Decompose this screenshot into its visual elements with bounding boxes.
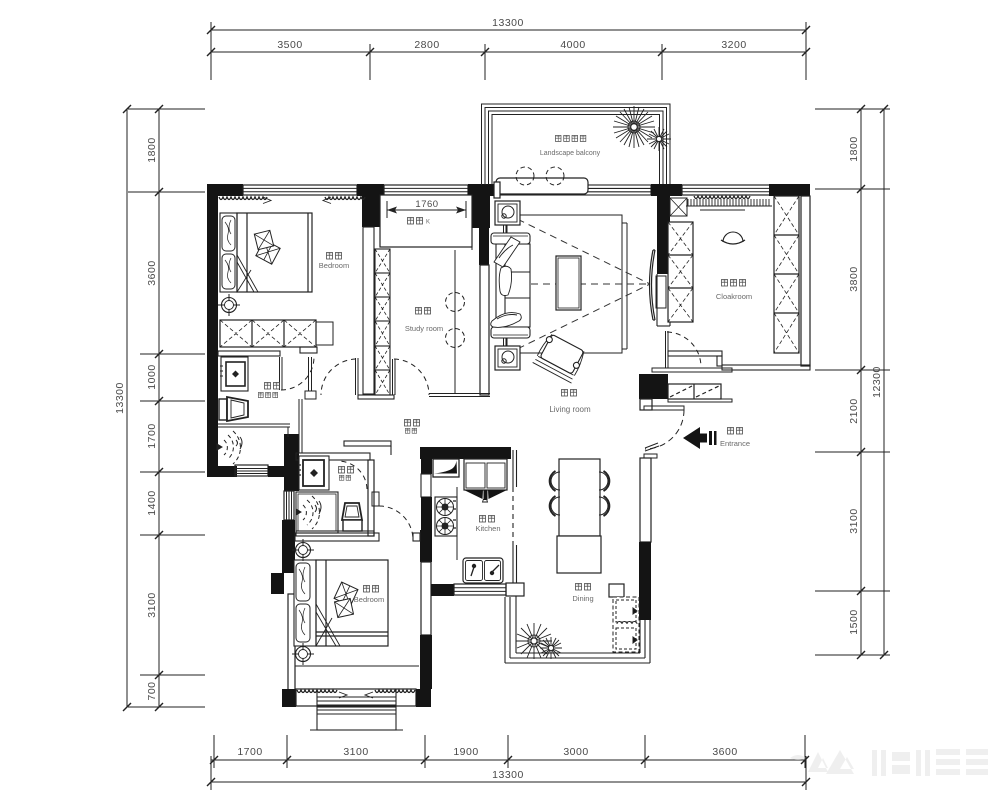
svg-text:13300: 13300 [114,382,126,414]
svg-text:Study room: Study room [405,324,443,333]
svg-text:3500: 3500 [277,39,302,51]
svg-text:3600: 3600 [712,746,737,758]
svg-text:Bedroom: Bedroom [319,261,349,270]
svg-text:Bedroom: Bedroom [354,595,384,604]
svg-text:2100: 2100 [848,398,860,423]
svg-text:1800: 1800 [146,137,158,162]
svg-text:4000: 4000 [560,39,585,51]
svg-text:3200: 3200 [721,39,746,51]
svg-text:3100: 3100 [146,592,158,617]
svg-text:1000: 1000 [146,364,158,389]
svg-text:1500: 1500 [848,609,860,634]
svg-text:Landscape balcony: Landscape balcony [540,150,601,157]
svg-text:1760: 1760 [415,199,438,210]
svg-text:Entrance: Entrance [720,439,750,448]
svg-text:1900: 1900 [453,746,478,758]
svg-text:3000: 3000 [563,746,588,758]
svg-text:Cloakroom: Cloakroom [716,292,752,301]
svg-text:1700: 1700 [237,746,262,758]
svg-text:3600: 3600 [146,260,158,285]
svg-text:13300: 13300 [492,17,524,29]
svg-text:13300: 13300 [492,769,524,781]
svg-text:Living room: Living room [549,405,591,414]
svg-text:700: 700 [146,681,158,700]
svg-text:Dining: Dining [572,594,593,603]
svg-text:2800: 2800 [414,39,439,51]
svg-text:1700: 1700 [146,423,158,448]
svg-text:1800: 1800 [848,136,860,161]
svg-text:1400: 1400 [146,490,158,515]
svg-text:3100: 3100 [343,746,368,758]
svg-text:3100: 3100 [848,508,860,533]
svg-text:Kitchen: Kitchen [475,524,500,533]
svg-text:K: K [426,220,430,226]
svg-text:12300: 12300 [871,366,883,398]
svg-text:3800: 3800 [848,266,860,291]
